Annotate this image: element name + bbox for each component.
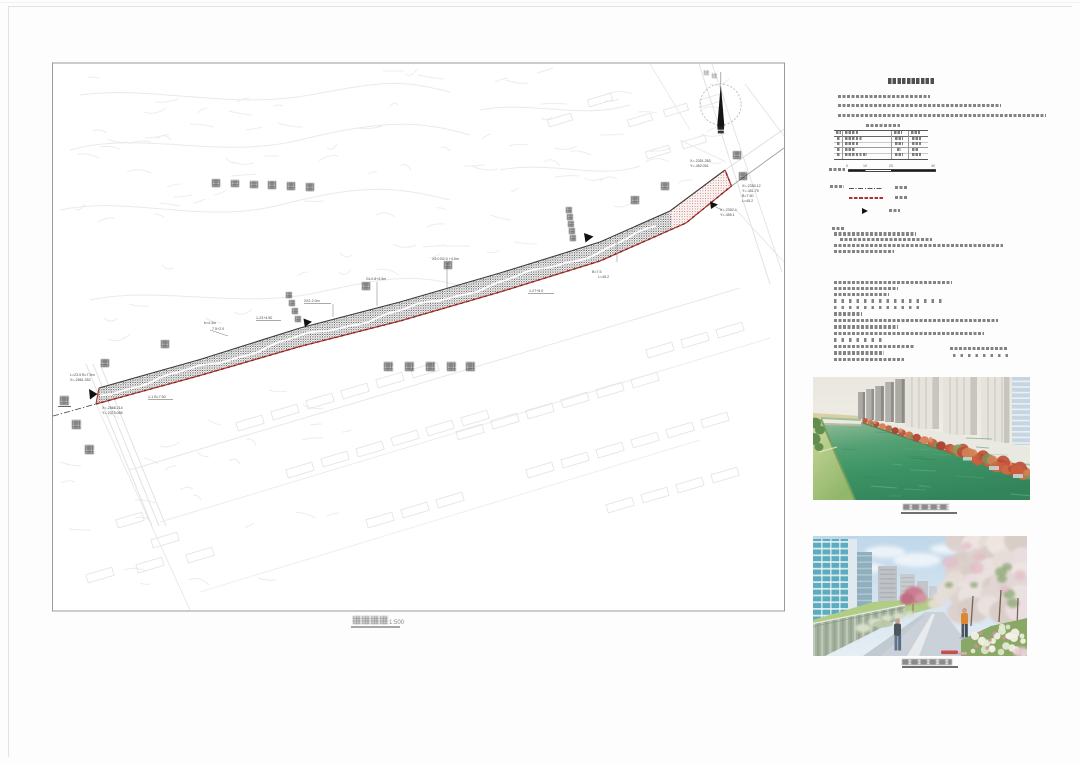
svg-text:24-0.8+4.5m: 24-0.8+4.5m [366, 277, 386, 281]
svg-text:Y=-452.051: Y=-452.051 [690, 164, 709, 168]
svg-text:B=7.50: B=7.50 [742, 194, 754, 198]
svg-text:1-1 B=7.50: 1-1 B=7.50 [148, 395, 166, 399]
svg-text:X=-2868.214: X=-2868.214 [102, 406, 123, 410]
svg-text:X=-2861.352: X=-2861.352 [70, 378, 91, 382]
svg-text:Y=-451.75: Y=-451.75 [742, 189, 759, 193]
svg-text:7.5+2.0: 7.5+2.0 [212, 327, 224, 331]
svg-text:B=7.5: B=7.5 [592, 270, 602, 274]
svg-text:L=23.5 B=7.5m: L=23.5 B=7.5m [70, 373, 95, 377]
svg-text:Y=-2375.065: Y=-2375.065 [102, 411, 123, 415]
svg-text:X=-2350.12: X=-2350.12 [742, 184, 761, 188]
svg-text:Y=-455.1: Y=-455.1 [720, 213, 735, 217]
svg-text:1:500: 1:500 [389, 620, 405, 626]
svg-text:X=-2351.263: X=-2351.263 [690, 159, 711, 163]
svg-text:L=45.2: L=45.2 [742, 199, 753, 203]
svg-text:1-23+4.50: 1-23+4.50 [256, 316, 272, 320]
svg-text:b=4.3m: b=4.3m [204, 321, 216, 325]
svg-text:2X2-2.0m: 2X2-2.0m [304, 299, 320, 303]
svg-text:X=-2352.4: X=-2352.4 [720, 208, 737, 212]
svg-text:1-27+5.0: 1-27+5.0 [529, 289, 543, 293]
svg-text:L=45.2: L=45.2 [598, 275, 609, 279]
